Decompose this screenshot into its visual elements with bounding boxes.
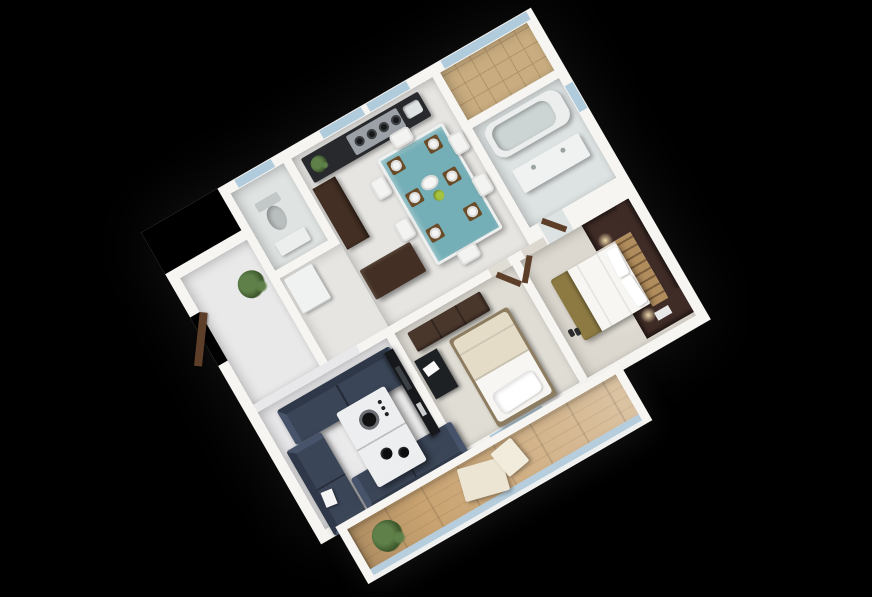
- stove-burner: [365, 127, 379, 141]
- decor-bowl: [378, 445, 394, 461]
- stove-burner: [377, 120, 391, 134]
- decor-bowl: [396, 445, 411, 460]
- table-button: [377, 399, 382, 404]
- faucet: [530, 164, 537, 171]
- faucet: [560, 147, 567, 154]
- stove-burner: [353, 134, 367, 148]
- table-button: [381, 405, 386, 410]
- table-button: [384, 411, 389, 416]
- speaker-decor: [356, 406, 383, 433]
- scene: [0, 0, 872, 597]
- floor-plan: [141, 8, 741, 597]
